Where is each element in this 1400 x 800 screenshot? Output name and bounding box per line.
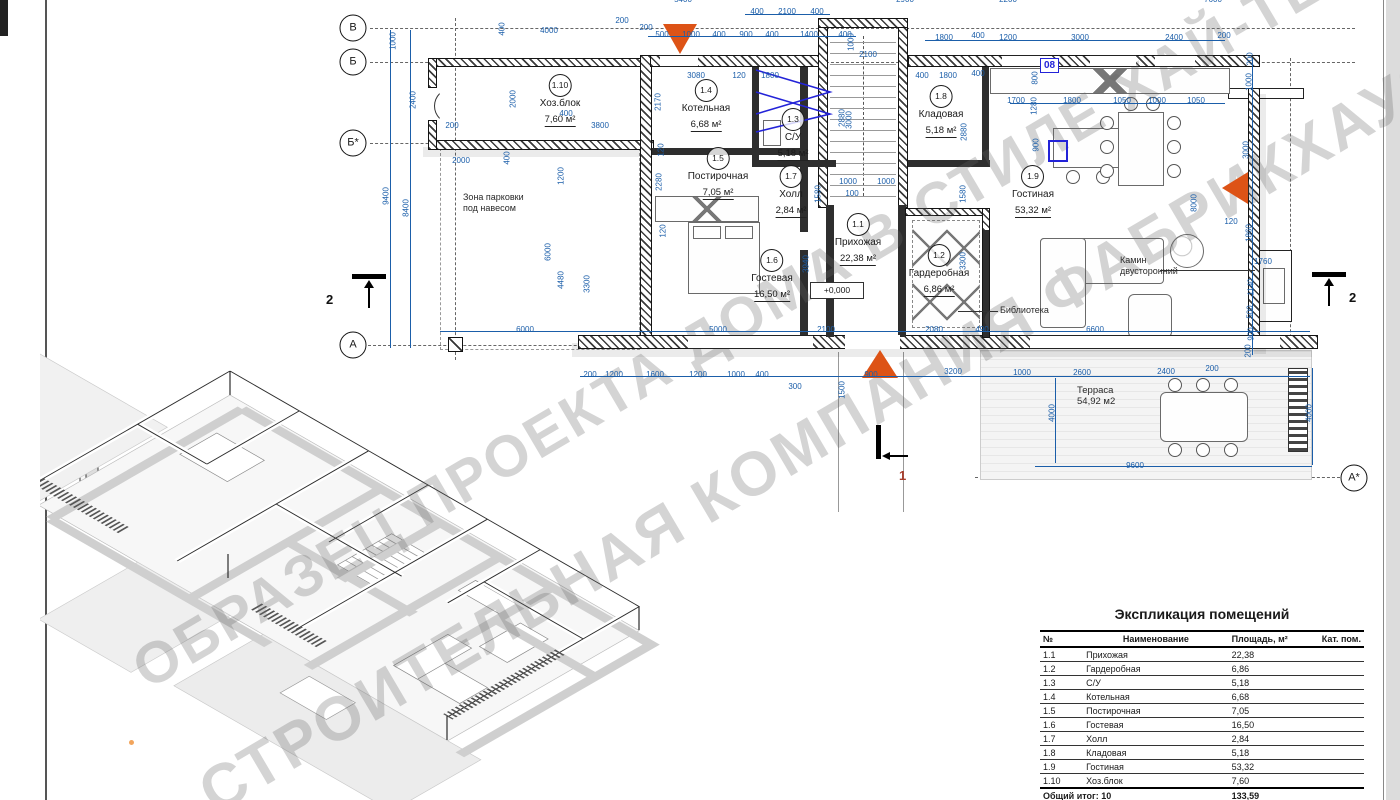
- cell-area: 2,84: [1229, 732, 1319, 746]
- dimension-label: 2280: [655, 173, 664, 191]
- dimension-label: 1000: [877, 177, 895, 186]
- window: [1090, 55, 1136, 67]
- table-row: 1.8 Кладовая 5,18: [1040, 746, 1364, 760]
- door-gap: [845, 335, 900, 349]
- dimension-label: 1000: [389, 32, 398, 50]
- room-label: 1.9 Гостиная 53,32 м²: [1012, 165, 1054, 218]
- table-row: 1.6 Гостевая 16,50: [1040, 718, 1364, 732]
- cell-cat: [1319, 704, 1364, 718]
- room-number-bubble: 1.9: [1021, 165, 1044, 188]
- dimension-label: 2100: [859, 50, 877, 59]
- wall-stair: [898, 18, 908, 208]
- window: [1155, 55, 1195, 67]
- col-header-cat: Кат. пом.: [1319, 631, 1364, 647]
- total-cat: [1319, 788, 1364, 800]
- chair: [1100, 164, 1114, 178]
- dimension-label: 2000: [509, 90, 518, 108]
- total-value: 133,59: [1229, 788, 1319, 800]
- entrance-marker-right: [1222, 172, 1248, 204]
- dimension-label: 500: [655, 30, 668, 39]
- chair: [1224, 443, 1238, 457]
- total-label: Общий итог: 10: [1040, 788, 1229, 800]
- table-row: 1.1 Прихожая 22,38: [1040, 647, 1364, 662]
- cell-area: 7,60: [1229, 774, 1319, 789]
- chair: [1167, 164, 1181, 178]
- table-row: 1.4 Котельная 6,68: [1040, 690, 1364, 704]
- section-number: 2: [1349, 290, 1356, 305]
- table-row: 1.10 Хоз.блок 7,60: [1040, 774, 1364, 789]
- dimension-label: 1860: [1245, 224, 1254, 242]
- room-name: Прихожая: [835, 237, 881, 248]
- cell-name: Гостиная: [1083, 760, 1228, 774]
- dimension-label: 5400: [674, 0, 692, 4]
- door-gap: [660, 55, 698, 67]
- cell-area: 7,05: [1229, 704, 1319, 718]
- sheet-corner-mark: [0, 0, 8, 36]
- dimension-label: 1200: [689, 370, 707, 379]
- cell-area: 16,50: [1229, 718, 1319, 732]
- cell-area: 5,18: [1229, 746, 1319, 760]
- terrace-table: [1160, 392, 1248, 442]
- dimension-label: 3080: [687, 71, 705, 80]
- cell-no: 1.8: [1040, 746, 1083, 760]
- dimension-label: 9400: [382, 187, 391, 205]
- dimension-label: 200: [445, 121, 458, 130]
- cell-no: 1.5: [1040, 704, 1083, 718]
- room-name: Котельная: [682, 103, 730, 114]
- dimension-label: 2000: [452, 156, 470, 165]
- cell-cat: [1319, 676, 1364, 690]
- section-flag-stem: [368, 284, 370, 308]
- library-label: Библиотека: [1000, 305, 1049, 316]
- dimension-label: 100: [845, 189, 858, 198]
- section-flag: [1312, 272, 1346, 277]
- chair: [1224, 378, 1238, 392]
- dim-line: [440, 331, 1310, 332]
- table-title: Экспликация помещений: [1040, 606, 1364, 622]
- room-label: 1.7 Холл 2,84 м²: [776, 165, 807, 218]
- wall: [428, 58, 437, 88]
- cell-cat: [1319, 718, 1364, 732]
- dimension-label: 3300: [959, 252, 968, 270]
- dimension-label: 3000: [1071, 33, 1089, 42]
- door-symbol-blue: [1048, 140, 1068, 162]
- dimension-label: 900: [864, 370, 877, 379]
- room-number-bubble: 1.4: [694, 79, 717, 102]
- dimension-label: 1800: [939, 71, 957, 80]
- dimension-label: 2900: [896, 0, 914, 4]
- table-row: 1.9 Гостиная 53,32: [1040, 760, 1364, 774]
- dimension-label: 1000: [1148, 96, 1166, 105]
- cell-cat: [1319, 732, 1364, 746]
- door-arc: [434, 88, 470, 124]
- section-flag: [876, 425, 881, 459]
- grid-axis-bubble: А: [340, 332, 367, 359]
- room-area: 5,18 м²: [778, 148, 809, 161]
- dimension-label: 900: [1032, 138, 1041, 151]
- dimension-label: 120: [657, 143, 666, 156]
- room-number-bubble: 1.6: [760, 249, 783, 272]
- cell-no: 1.6: [1040, 718, 1083, 732]
- table-row: 1.2 Гардеробная 6,86: [1040, 662, 1364, 676]
- axonometric-3d-view: [40, 322, 810, 800]
- room-number-bubble: 1.7: [779, 165, 802, 188]
- dimension-label: 4000: [540, 26, 558, 35]
- dimension-label: 400: [915, 71, 928, 80]
- dimension-label: 400: [810, 7, 823, 16]
- level-mark: +0,000: [810, 282, 864, 299]
- dimension-label: 2200: [999, 0, 1017, 4]
- dimension-label: 8000: [1190, 194, 1199, 212]
- cell-area: 22,38: [1229, 647, 1319, 662]
- dimension-label: 1000: [682, 30, 700, 39]
- dimension-label: 1000: [839, 177, 857, 186]
- grid-axis-bubble: Б: [340, 49, 367, 76]
- dimension-label: 7600: [1204, 0, 1222, 4]
- room-label: 1.4 Котельная 6,68 м²: [682, 79, 730, 132]
- dimension-label: 3800: [591, 121, 609, 130]
- dimension-label: 6000: [516, 325, 534, 334]
- dimension-label: 3940: [802, 255, 811, 273]
- dimension-label: 200: [1217, 31, 1230, 40]
- dimension-label: 1760: [1254, 257, 1272, 266]
- section-number: 2: [326, 292, 333, 307]
- room-explication: Экспликация помещений № Наименование Пло…: [1040, 606, 1364, 800]
- room-name: Холл: [776, 189, 807, 200]
- dimension-label: 2600: [1073, 368, 1091, 377]
- dimension-label: 1000: [847, 33, 856, 51]
- dimension-label: 4000: [1305, 404, 1314, 422]
- room-area: 16,50 м²: [754, 289, 790, 302]
- terrace-label: Терраса 54,92 м2: [1077, 386, 1115, 407]
- parking-outline: [440, 148, 640, 350]
- room-name: С/У: [778, 132, 809, 143]
- dimension-label: 200: [1244, 344, 1253, 357]
- stool: [1066, 170, 1080, 184]
- room-number-bubble: 1.3: [781, 108, 804, 131]
- wall: [428, 120, 437, 150]
- window: [1030, 335, 1280, 349]
- explication-table: № Наименование Площадь, м² Кат. пом. 1.1…: [1040, 630, 1364, 800]
- dimension-label: 1000: [1245, 73, 1254, 91]
- cell-name: Хоз.блок: [1083, 774, 1228, 789]
- cell-cat: [1319, 662, 1364, 676]
- dimension-label: 6600: [1086, 325, 1104, 334]
- chair: [1167, 116, 1181, 130]
- dimension-label: 1200: [605, 370, 623, 379]
- dimension-label: 120: [1224, 217, 1237, 226]
- chair: [1196, 378, 1210, 392]
- room-name: Гостиная: [1012, 189, 1054, 200]
- cell-name: Котельная: [1083, 690, 1228, 704]
- section-flag-stem: [886, 455, 908, 457]
- room-area: 53,32 м²: [1015, 205, 1051, 218]
- cell-no: 1.9: [1040, 760, 1083, 774]
- chair: [1196, 443, 1210, 457]
- dimension-label: 1000: [1013, 368, 1031, 377]
- room-name: Кладовая: [919, 109, 964, 120]
- dimension-label: 1400: [800, 30, 818, 39]
- dimension-label: 1140: [1247, 278, 1256, 295]
- dimension-label: 1580: [959, 185, 968, 203]
- dimension-label: 3000: [1242, 141, 1251, 159]
- dimension-label: 4000: [1048, 404, 1057, 422]
- dimension-label: 8400: [402, 199, 411, 217]
- entrance-marker-top: [663, 24, 697, 54]
- dimension-label: 1050: [1187, 96, 1205, 105]
- cell-name: С/У: [1083, 676, 1228, 690]
- room-area: 5,18 м²: [926, 125, 957, 138]
- chair: [1167, 140, 1181, 154]
- cell-no: 1.10: [1040, 774, 1083, 789]
- dimension-label: 1800: [761, 71, 779, 80]
- dimension-label: 6000: [544, 243, 553, 261]
- room-area: 22,38 м²: [840, 253, 876, 266]
- grid-axis-bubble: Б*: [340, 130, 367, 157]
- dimension-label: 1200: [557, 167, 566, 185]
- room-area: 6,86 м²: [924, 284, 955, 297]
- dimension-label: 2880: [960, 123, 969, 141]
- appliance-tag: 08: [1040, 58, 1059, 73]
- table-row: 1.5 Постирочная 7,05: [1040, 704, 1364, 718]
- grid-axis-bubble: В: [340, 15, 367, 42]
- table-row: 1.3 С/У 5,18: [1040, 676, 1364, 690]
- col-header-no: №: [1040, 631, 1083, 647]
- section-flag-stem: [1328, 282, 1330, 306]
- room-area: 2,84 м²: [776, 205, 807, 218]
- table-row: 1.7 Холл 2,84: [1040, 732, 1364, 746]
- table-total-row: Общий итог: 10 133,59: [1040, 788, 1364, 800]
- window: [688, 335, 813, 349]
- dimension-label: 400: [712, 30, 725, 39]
- dimension-label: 5000: [709, 325, 727, 334]
- dimension-label: 1280: [1030, 97, 1039, 115]
- dimension-label: 900: [1247, 327, 1256, 340]
- dimension-label: 9600: [1126, 461, 1144, 470]
- dimension-label: 1800: [1063, 96, 1081, 105]
- wall: [428, 140, 654, 150]
- dimension-label: 1200: [999, 33, 1017, 42]
- dimension-label: 400: [971, 69, 984, 78]
- dimension-label: 2080: [925, 325, 943, 334]
- room-number-bubble: 1.10: [548, 74, 571, 97]
- dimension-label: 400: [498, 22, 507, 35]
- dimension-label: 400: [503, 151, 512, 164]
- dimension-label: 400: [971, 31, 984, 40]
- cell-no: 1.4: [1040, 690, 1083, 704]
- dimension-label: 1600: [646, 370, 664, 379]
- col-header-name: Наименование: [1083, 631, 1228, 647]
- wall-stair: [818, 18, 908, 28]
- fireplace-label: Камин двусторонний: [1120, 255, 1178, 276]
- room-number-bubble: 1.1: [847, 213, 870, 236]
- room-label: 1.6 Гостевая 16,50 м²: [751, 249, 793, 302]
- dimension-label: 1000: [727, 370, 745, 379]
- drawing-sheet: ОБРАЗЕЦ ПРОЕКТА ДОМА В СТИЛЕ ХАЙ-ТЕК СТР…: [0, 0, 1400, 800]
- pillow: [693, 226, 721, 239]
- room-number-bubble: 1.5: [707, 147, 730, 170]
- cell-no: 1.2: [1040, 662, 1083, 676]
- room-number-bubble: 1.2: [928, 244, 951, 267]
- dimension-label: 2400: [1157, 367, 1175, 376]
- chair: [1168, 378, 1182, 392]
- room-name: Постирочная: [688, 171, 749, 182]
- room-name: Хоз.блок: [540, 98, 581, 109]
- dimension-label: 400: [765, 30, 778, 39]
- cell-name: Холл: [1083, 732, 1228, 746]
- cell-name: Кладовая: [1083, 746, 1228, 760]
- room-label: 1.5 Постирочная 7,05 м²: [688, 147, 749, 200]
- dimension-label: 200: [583, 370, 596, 379]
- cell-cat: [1319, 647, 1364, 662]
- cell-no: 1.3: [1040, 676, 1083, 690]
- wall: [428, 58, 654, 67]
- dimension-label: 490: [975, 325, 988, 334]
- dimension-label: 120: [659, 224, 668, 237]
- dimension-label: 1050: [1113, 96, 1131, 105]
- room-number-bubble: 1.8: [929, 85, 952, 108]
- dimension-label: 1580: [814, 185, 823, 203]
- chair: [1168, 443, 1182, 457]
- parking-label: Зона парковки под навесом: [463, 192, 524, 213]
- dimension-label: 2880: [838, 109, 847, 127]
- room-label: 1.3 С/У 5,18 м²: [778, 108, 809, 161]
- cell-cat: [1319, 774, 1364, 789]
- dimension-label: 2100: [817, 325, 835, 334]
- dimension-label: 4480: [557, 271, 566, 289]
- cell-name: Постирочная: [1083, 704, 1228, 718]
- dimension-label: 1500: [838, 381, 847, 399]
- canopy-slab: [1228, 88, 1304, 99]
- cell-area: 6,86: [1229, 662, 1319, 676]
- dim-line: [410, 30, 411, 348]
- cell-cat: [1319, 690, 1364, 704]
- room-label: 1.8 Кладовая 5,18 м²: [919, 85, 964, 138]
- dimension-label: 2170: [654, 93, 663, 111]
- room-name: Гостевая: [751, 273, 793, 284]
- dimension-label: 2400: [1165, 33, 1183, 42]
- cell-area: 53,32: [1229, 760, 1319, 774]
- dimension-label: 3300: [583, 275, 592, 293]
- dimension-label: 400: [750, 7, 763, 16]
- fireplace-insert: [1263, 268, 1285, 304]
- dimension-label: 2100: [778, 7, 796, 16]
- room-area: 7,05 м²: [703, 187, 734, 200]
- section-flag: [352, 274, 386, 279]
- library-leader: [958, 311, 998, 312]
- dimension-label: 2400: [409, 91, 418, 109]
- table-header-row: № Наименование Площадь, м² Кат. пом.: [1040, 631, 1364, 647]
- dimension-label: 300: [788, 382, 801, 391]
- dimension-label: 800: [1031, 71, 1040, 84]
- room-label: 1.10 Хоз.блок 7,60 м²: [540, 74, 581, 127]
- dimension-label: 400: [755, 370, 768, 379]
- cell-area: 6,68: [1229, 690, 1319, 704]
- cell-name: Прихожая: [1083, 647, 1228, 662]
- cell-cat: [1319, 760, 1364, 774]
- section-number: 1: [899, 468, 906, 483]
- dimension-label: 3200: [944, 367, 962, 376]
- cell-cat: [1319, 746, 1364, 760]
- dimension-label: 200: [615, 16, 628, 25]
- cell-name: Гардеробная: [1083, 662, 1228, 676]
- dimension-label: 400: [559, 109, 572, 118]
- dimension-label: 120: [732, 71, 745, 80]
- dim-line: [1035, 466, 1312, 467]
- col-header-area: Площадь, м²: [1229, 631, 1319, 647]
- dimension-label: 900: [739, 30, 752, 39]
- room-area: 6,68 м²: [691, 119, 722, 132]
- dimension-label: 200: [1205, 364, 1218, 373]
- cell-name: Гостевая: [1083, 718, 1228, 732]
- dimension-label: 1700: [1007, 96, 1025, 105]
- dimension-label: 200: [639, 23, 652, 32]
- grid-axis-bubble: А*: [1341, 465, 1368, 492]
- room-label: 1.1 Прихожая 22,38 м²: [835, 213, 881, 266]
- pillow: [725, 226, 753, 239]
- wall: [640, 55, 652, 348]
- cell-area: 5,18: [1229, 676, 1319, 690]
- dimension-label: 500: [1246, 305, 1255, 318]
- dimension-label: 1800: [935, 33, 953, 42]
- cell-no: 1.7: [1040, 732, 1083, 746]
- dimension-label: 200: [1246, 52, 1255, 65]
- cell-no: 1.1: [1040, 647, 1083, 662]
